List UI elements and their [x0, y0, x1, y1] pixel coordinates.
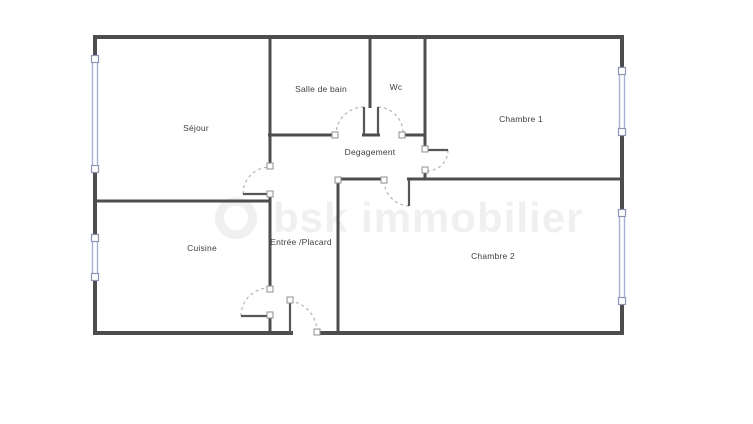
door-swing-arc: [378, 107, 403, 134]
door-node: [267, 286, 273, 292]
room-label-chambre-1: Chambre 1: [499, 114, 543, 124]
door-node: [287, 297, 293, 303]
door-swing-arc: [336, 107, 364, 134]
door-swing-arc: [243, 167, 270, 194]
room-label-sejour: Séjour: [183, 123, 209, 133]
window: [620, 213, 625, 301]
door-node: [267, 312, 273, 318]
floorplan-drawing: [0, 0, 753, 424]
window-handle: [92, 274, 99, 281]
door-swing-arc: [241, 288, 270, 316]
room-label-entree-placard: Entrée /Placard: [270, 237, 332, 247]
window-handle: [92, 166, 99, 173]
door-node: [335, 177, 341, 183]
door-swing-arc: [384, 181, 409, 206]
door-node: [332, 132, 338, 138]
window: [93, 59, 98, 169]
window-handle: [92, 56, 99, 63]
room-label-degagement: Degagement: [345, 147, 396, 157]
door-node: [381, 177, 387, 183]
door-node: [422, 146, 428, 152]
door-node: [267, 191, 273, 197]
window: [620, 71, 625, 132]
window-handle: [92, 235, 99, 242]
door-node: [267, 163, 273, 169]
door-node: [422, 167, 428, 173]
door-swing-arc: [290, 301, 317, 331]
window-handle: [619, 298, 626, 305]
window: [93, 238, 98, 277]
room-label-salle-de-bain: Salle de bain: [295, 84, 347, 94]
door-node: [399, 132, 405, 138]
floorplan-canvas: bsk immobilier Séjour Salle de bain Wc C…: [0, 0, 753, 424]
window-handle: [619, 129, 626, 136]
window-handle: [619, 68, 626, 75]
window-handle: [619, 210, 626, 217]
room-label-cuisine: Cuisine: [187, 243, 217, 253]
door-swing-arc: [428, 150, 448, 171]
room-label-chambre-2: Chambre 2: [471, 251, 515, 261]
door-node: [314, 329, 320, 335]
room-label-wc: Wc: [390, 82, 403, 92]
